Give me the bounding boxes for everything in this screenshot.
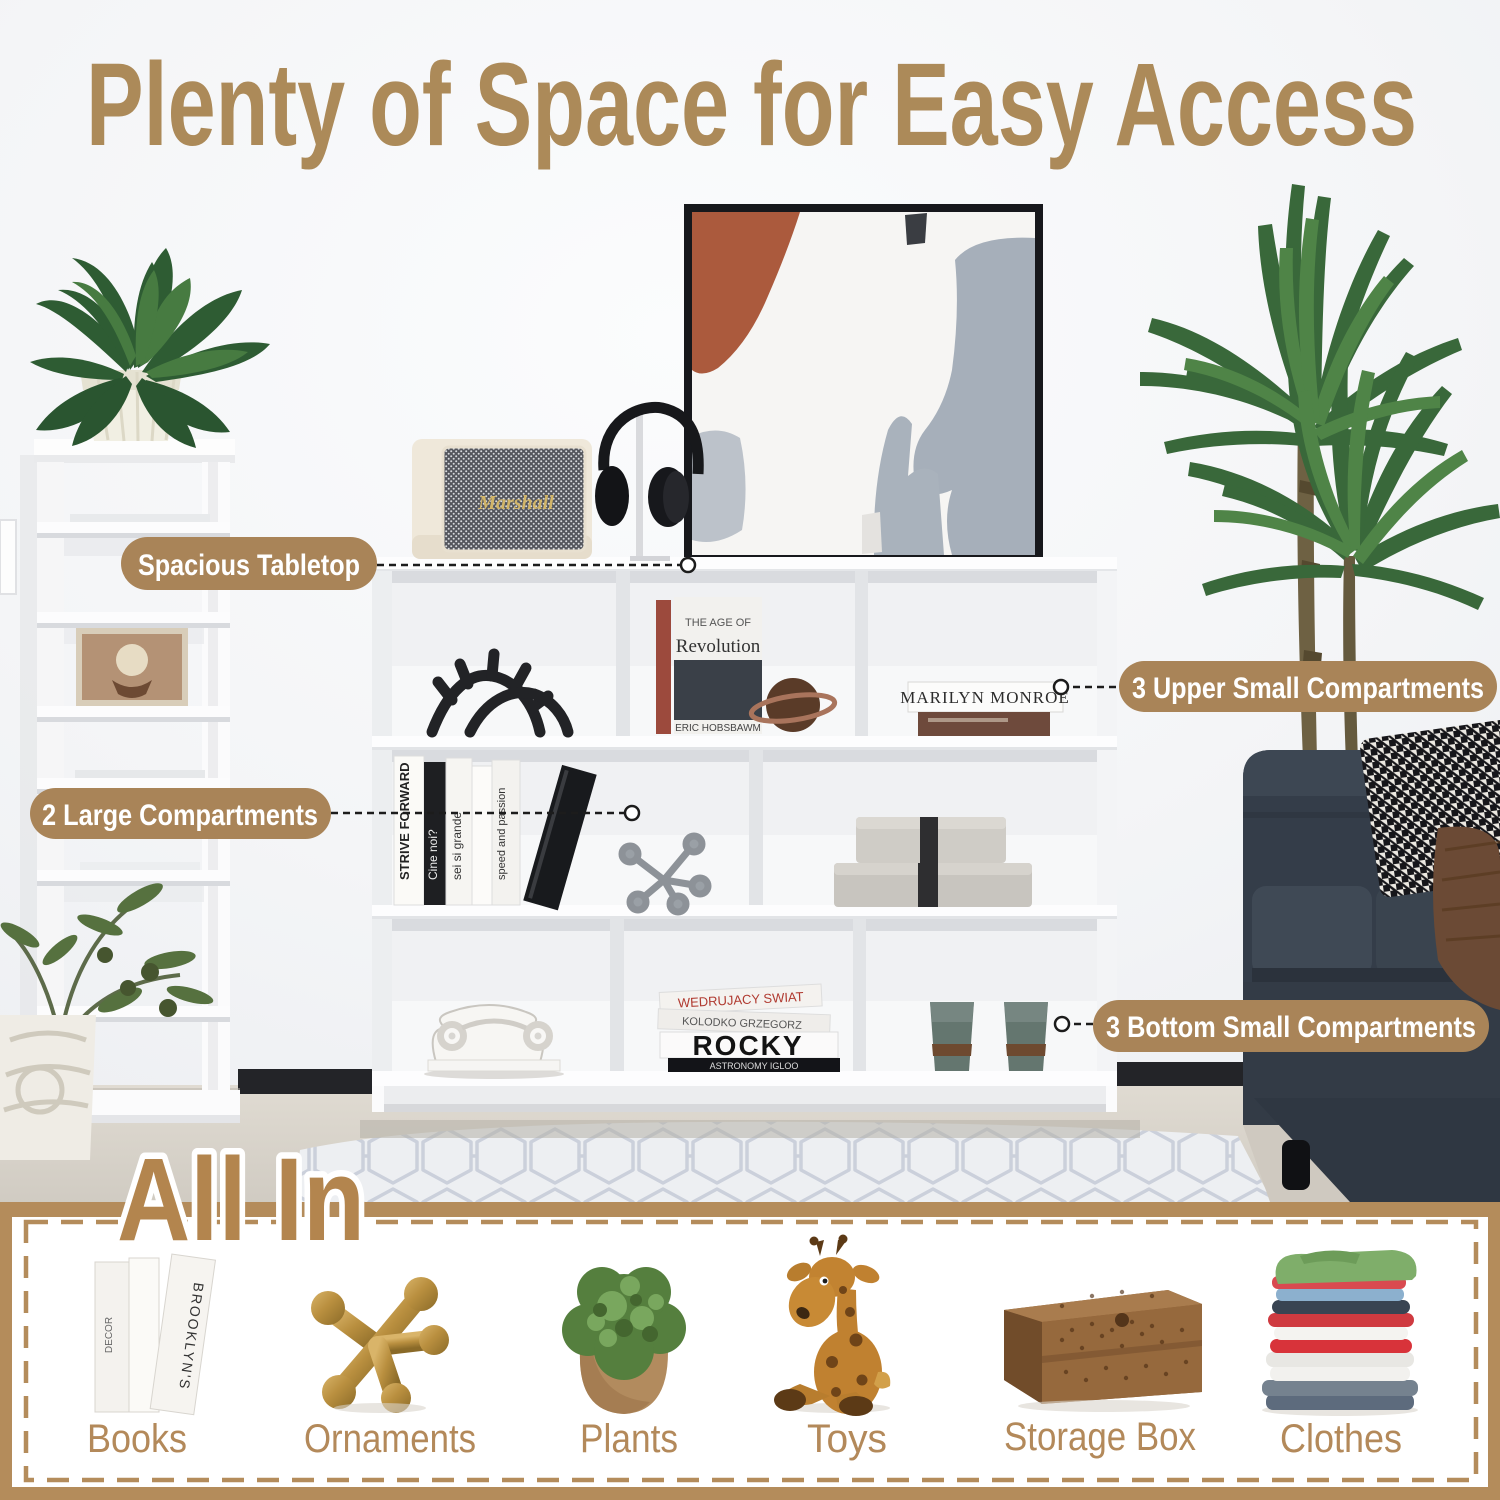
svg-text:Storage Box: Storage Box <box>1004 1415 1196 1459</box>
svg-text:MARILYN MONROE: MARILYN MONROE <box>900 688 1070 707</box>
svg-text:3 Upper Small Compartments: 3 Upper Small Compartments <box>1132 672 1484 705</box>
svg-text:Clothes: Clothes <box>1280 1417 1402 1461</box>
svg-text:Cine noi?: Cine noi? <box>426 829 440 880</box>
svg-text:Books: Books <box>87 1417 187 1461</box>
svg-text:THE AGE OF: THE AGE OF <box>685 617 751 629</box>
svg-text:DECOR: DECOR <box>104 1317 115 1353</box>
svg-text:ASTRONOMY IGLOO: ASTRONOMY IGLOO <box>710 1061 799 1071</box>
svg-text:Plenty of Space for Easy Acces: Plenty of Space for Easy Access <box>86 39 1417 171</box>
svg-text:All In: All In <box>117 1134 365 1266</box>
svg-text:Marshall: Marshall <box>477 492 554 514</box>
svg-text:speed and passion: speed and passion <box>496 788 508 880</box>
svg-text:Spacious Tabletop: Spacious Tabletop <box>138 549 360 582</box>
svg-text:STRIVE FORWARD: STRIVE FORWARD <box>397 763 412 881</box>
svg-text:Revolution: Revolution <box>676 636 761 657</box>
svg-text:Plants: Plants <box>580 1417 678 1461</box>
svg-text:ROCKY: ROCKY <box>692 1030 803 1061</box>
svg-text:ERIC HOBSBAWM: ERIC HOBSBAWM <box>675 723 761 734</box>
svg-text:Toys: Toys <box>807 1417 887 1461</box>
svg-text:Ornaments: Ornaments <box>304 1417 476 1461</box>
svg-text:3 Bottom Small Compartments: 3 Bottom Small Compartments <box>1106 1011 1476 1044</box>
svg-text:sei si grande: sei si grande <box>450 812 464 880</box>
svg-text:2 Large Compartments: 2 Large Compartments <box>42 799 318 832</box>
